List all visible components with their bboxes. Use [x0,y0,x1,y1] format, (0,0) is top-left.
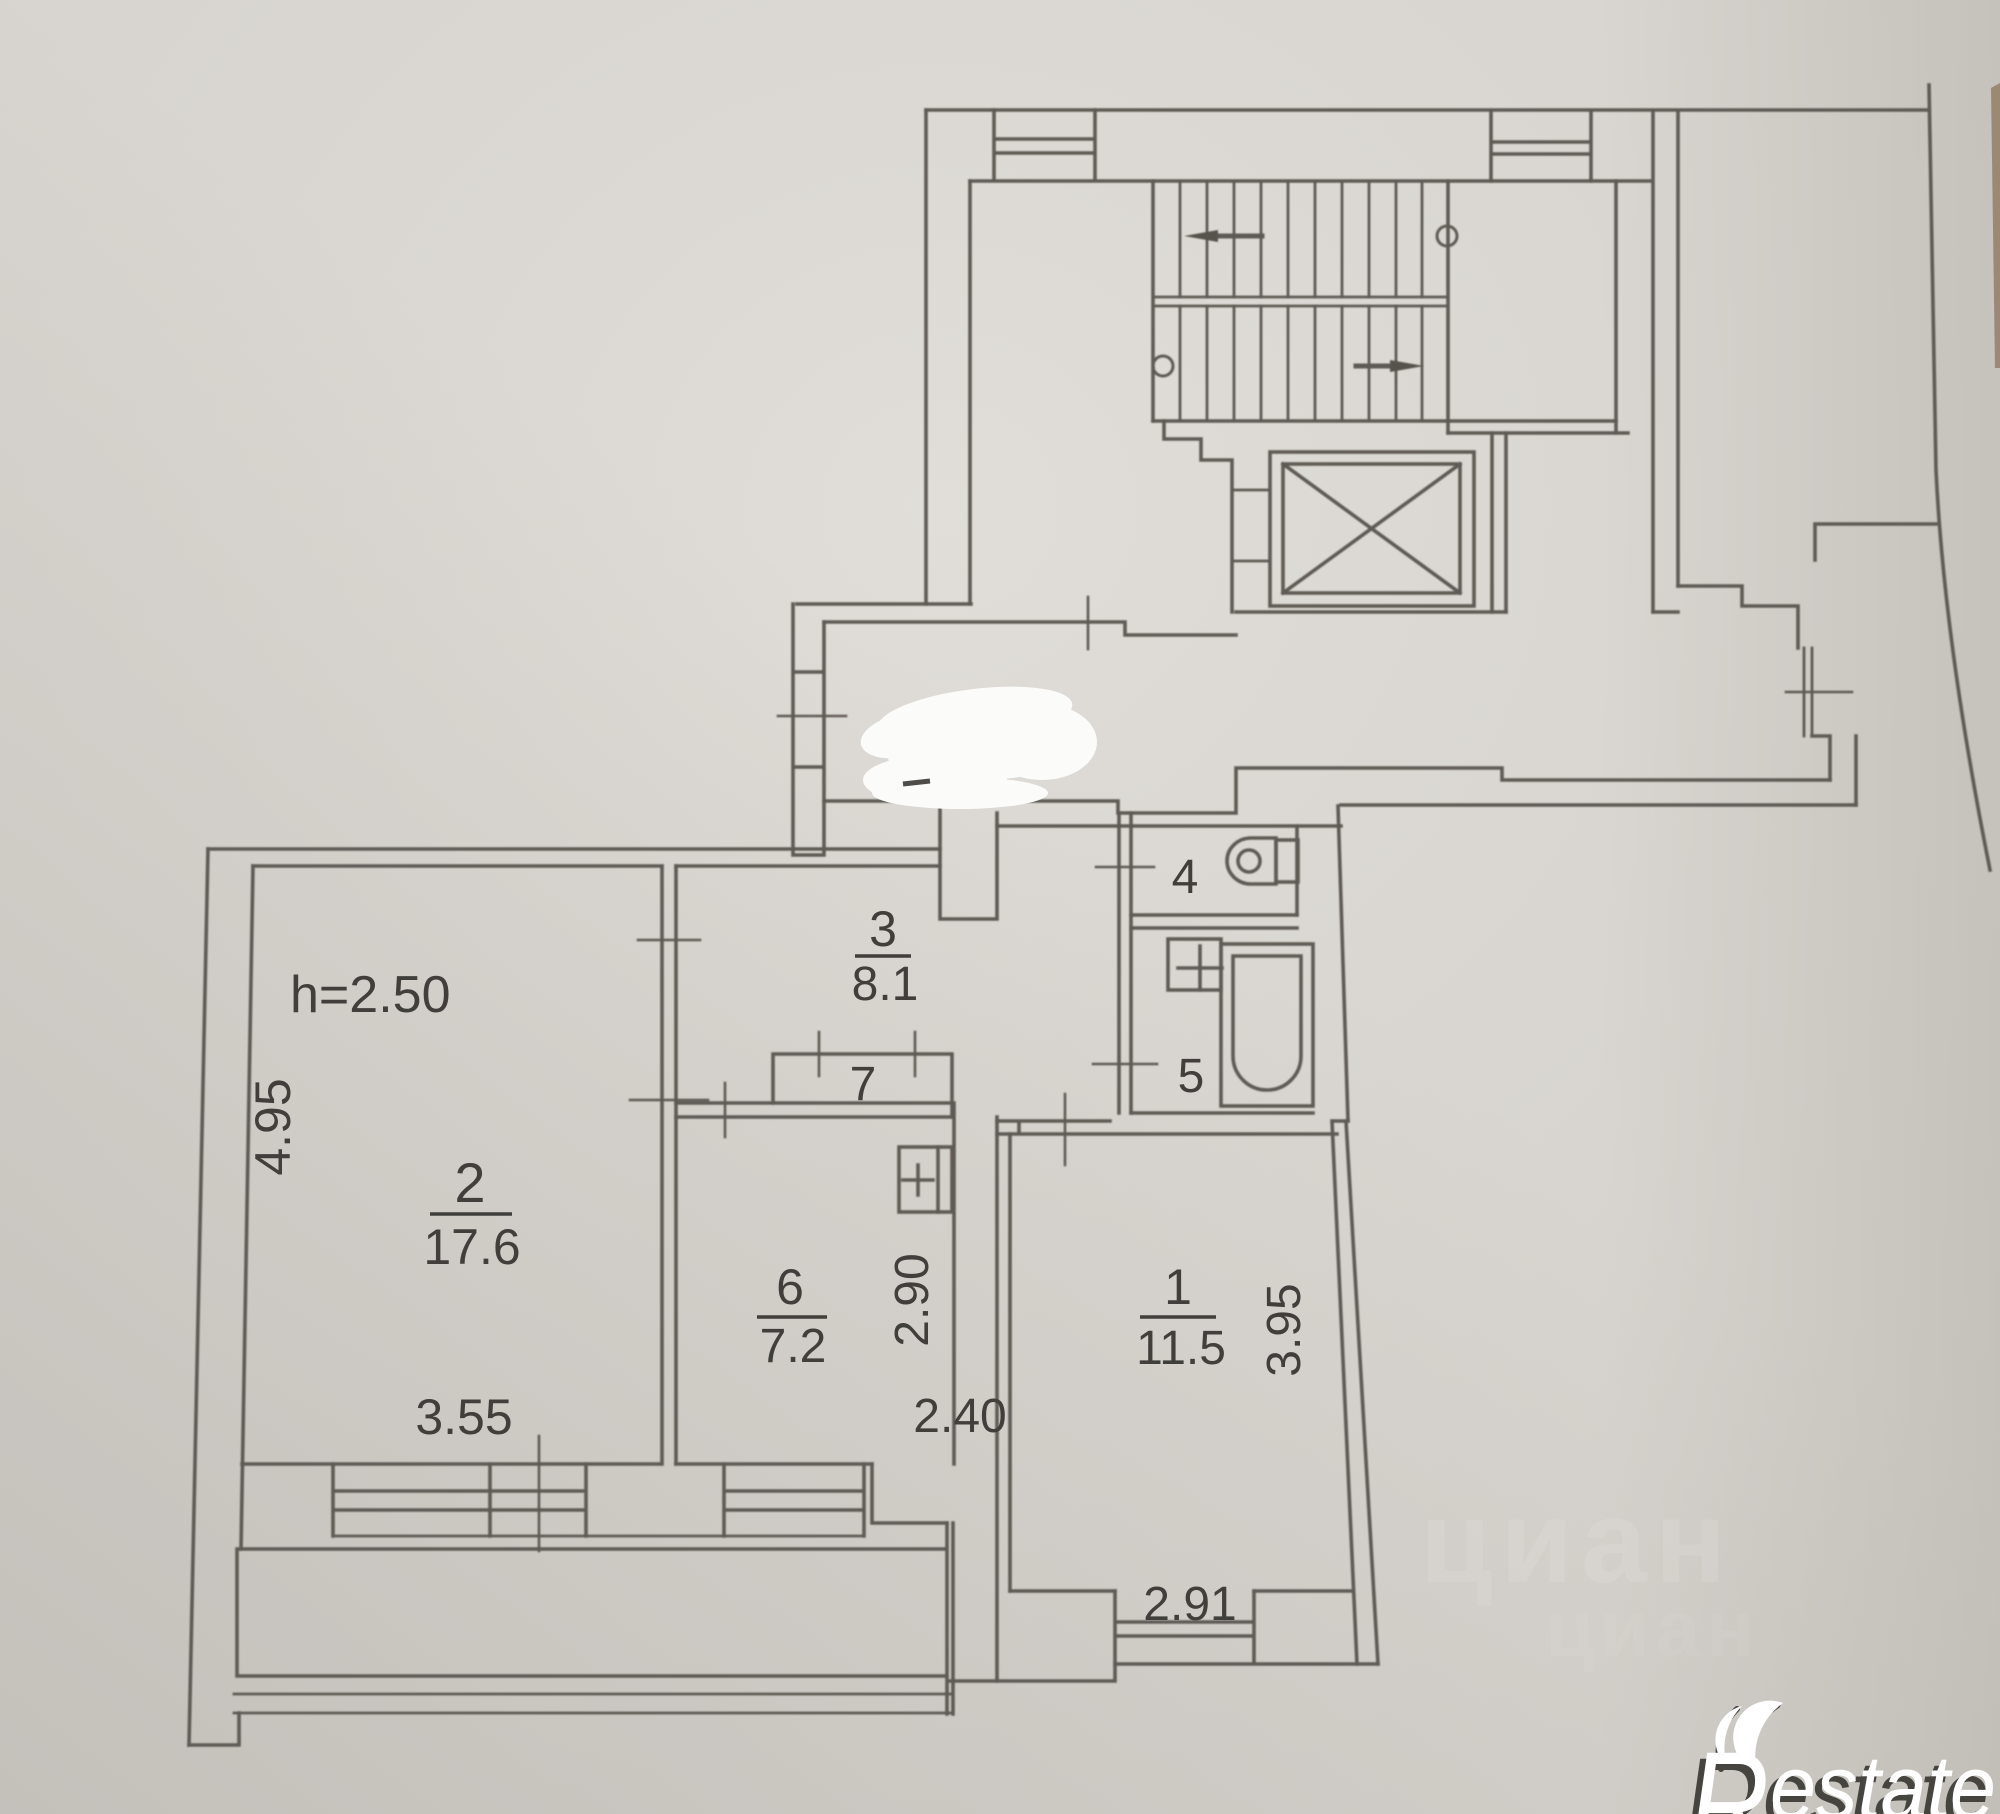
svg-text:2.91: 2.91 [1143,1578,1236,1631]
svg-text:5: 5 [1178,1050,1205,1103]
svg-text:6: 6 [776,1259,804,1315]
svg-text:8.1: 8.1 [852,958,919,1011]
svg-text:R: R [1689,1720,1769,1814]
svg-text:2.40: 2.40 [913,1390,1006,1443]
svg-text:7: 7 [850,1058,877,1111]
svg-text:2.90: 2.90 [886,1253,939,1346]
svg-text:11.5: 11.5 [1136,1322,1226,1375]
svg-text:17.6: 17.6 [423,1219,520,1275]
svg-text:1: 1 [1164,1259,1192,1315]
svg-text:estate: estate [1770,1738,1996,1814]
svg-text:7.2: 7.2 [760,1320,827,1373]
svg-text:2: 2 [454,1151,485,1214]
svg-text:4.95: 4.95 [245,1078,301,1175]
svg-text:циан: циан [1545,1584,1760,1673]
svg-text:h=2.50: h=2.50 [290,966,451,1024]
svg-text:4: 4 [1172,851,1199,904]
svg-text:3: 3 [869,901,897,957]
svg-text:3.55: 3.55 [415,1389,512,1445]
svg-text:3.95: 3.95 [1258,1283,1311,1376]
